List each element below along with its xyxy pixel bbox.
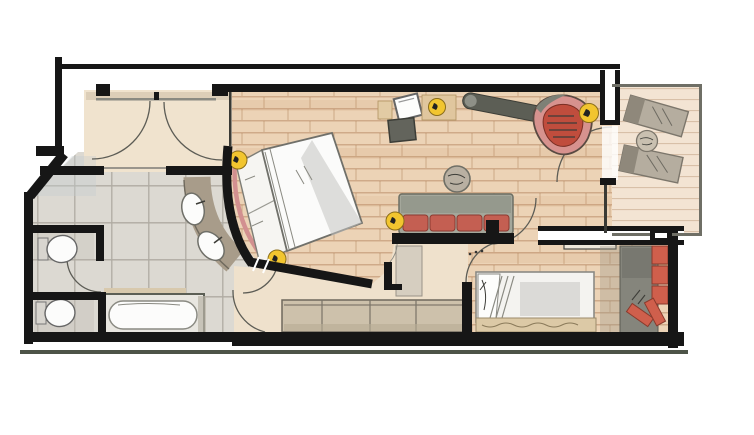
balcony-top-line xyxy=(612,84,702,87)
single-bed xyxy=(476,272,596,332)
wardrobe-red-box xyxy=(652,246,668,264)
door-dot xyxy=(481,250,484,253)
right-wall xyxy=(668,226,678,348)
wall-stub-horizontal xyxy=(384,284,402,290)
door-dot xyxy=(469,253,472,256)
door-jamb xyxy=(486,220,499,235)
sideboard xyxy=(282,300,468,332)
t-wall-right xyxy=(615,70,620,124)
desk-chair xyxy=(394,93,423,120)
wall-core xyxy=(605,70,615,120)
top-inner-wall xyxy=(226,84,620,92)
bath-threshold xyxy=(104,167,166,169)
bottom-outer-line xyxy=(20,350,688,354)
post-core xyxy=(655,233,667,238)
hall-bottom-wall-right xyxy=(166,166,232,175)
threshold-tick xyxy=(154,92,159,100)
wardrobe-side-shade xyxy=(600,246,620,336)
round-side-table xyxy=(444,166,470,192)
wc2-top-wall xyxy=(30,292,104,300)
wardrobe xyxy=(600,246,668,336)
sofa-cushion xyxy=(403,215,428,231)
wc1-top-wall xyxy=(30,225,104,233)
door-dot xyxy=(475,251,478,254)
t-wall-left xyxy=(600,70,605,124)
sofa-cushion xyxy=(430,215,455,231)
t-wall-cap xyxy=(600,120,620,125)
wardrobe-inner-shade xyxy=(622,248,656,278)
bathtub xyxy=(102,288,206,336)
sofa-backrest xyxy=(401,196,511,213)
sofa-cushion xyxy=(457,215,482,231)
door-jamb xyxy=(96,84,110,96)
sideboard-shade xyxy=(284,324,466,331)
hall-bottom-wall-left xyxy=(40,166,104,175)
top-outer-wall xyxy=(55,64,620,69)
desk-mat-small xyxy=(378,101,392,119)
balcony-side-table xyxy=(637,131,658,152)
desk-lamp xyxy=(429,99,446,116)
wardrobe-red-box xyxy=(652,266,668,284)
tub-left-wall xyxy=(98,292,106,336)
balcony-right-line xyxy=(699,84,702,236)
single-bed-shading xyxy=(520,282,580,316)
stool xyxy=(388,118,416,143)
second-room-left-wall xyxy=(462,282,472,336)
top-left-wall xyxy=(55,57,62,154)
hall-partition-thin xyxy=(229,92,232,146)
bottom-wall-main xyxy=(232,332,684,346)
left-wall xyxy=(24,192,33,344)
door-jamb xyxy=(600,178,616,185)
bottom-wall-left xyxy=(24,332,232,342)
floor-plan-drawing xyxy=(0,0,754,435)
floor-lamp xyxy=(386,212,404,230)
hall-floor xyxy=(84,90,232,172)
door-jamb xyxy=(212,84,228,96)
floor-plan-canvas xyxy=(0,0,754,435)
wc1-right-wall xyxy=(96,225,104,261)
floor-lamp xyxy=(580,104,599,123)
tub-niche-post xyxy=(198,296,206,334)
window-wall-thin xyxy=(604,185,607,233)
balcony-door-threshold xyxy=(602,126,618,180)
